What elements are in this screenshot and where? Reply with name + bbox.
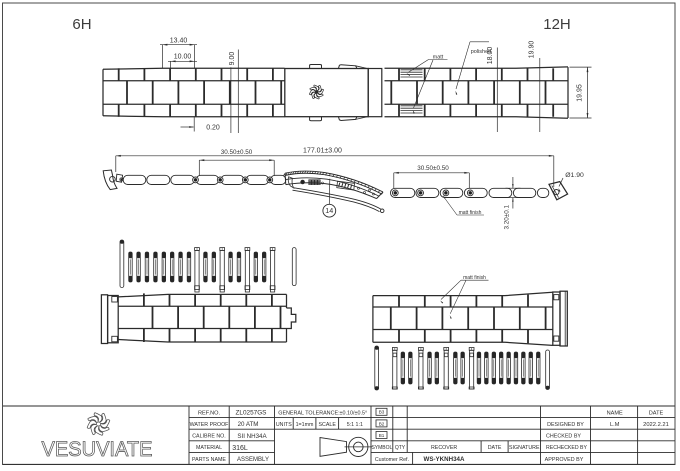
svg-text:DATE: DATE [488,445,502,451]
svg-text:APPROVED BY: APPROVED BY [545,457,584,463]
svg-text:DATE: DATE [649,410,664,416]
svg-text:ASSEMBLY: ASSEMBLY [237,457,269,463]
svg-text:SYMBOL: SYMBOL [371,445,392,451]
svg-text:9.00: 9.00 [229,52,236,66]
svg-text:19.90: 19.90 [529,41,536,59]
svg-text:SIGNATURE: SIGNATURE [509,445,540,451]
svg-text:RECOVER: RECOVER [431,445,457,451]
svg-text:CHECKED BY: CHECKED BY [546,434,581,440]
svg-text:14: 14 [325,206,333,215]
svg-text:5:1 1:1: 5:1 1:1 [347,422,363,428]
svg-text:DESIGNED BY: DESIGNED BY [547,422,584,428]
svg-text:10.00: 10.00 [174,54,192,61]
svg-text:316L: 316L [232,445,248,452]
svg-text:1=1mm: 1=1mm [296,422,314,428]
svg-text:RECHECKED BY: RECHECKED BY [546,445,587,451]
svg-text:SCALE: SCALE [319,422,337,428]
svg-text:SII NH34A: SII NH34A [237,433,267,440]
svg-text:0.20: 0.20 [206,125,220,132]
svg-text:30.50±0.50: 30.50±0.50 [417,165,449,172]
svg-text:PARTS NAME: PARTS NAME [192,457,226,463]
svg-text:L.M: L.M [610,422,620,428]
svg-text:UNITS: UNITS [276,422,292,428]
svg-text:Customer Ref.: Customer Ref. [375,457,409,463]
svg-text:MATERIAL: MATERIAL [196,445,222,451]
svg-text:NAME: NAME [607,410,623,416]
svg-text:B1: B1 [379,433,385,438]
svg-text:QTY: QTY [395,445,406,451]
svg-text:WATER PROOF: WATER PROOF [190,422,230,428]
svg-text:VESUVIATE: VESUVIATE [42,437,153,461]
svg-text:REF.NO.: REF.NO. [198,410,221,416]
svg-text:CALIBRE NO.: CALIBRE NO. [192,434,226,440]
svg-text:30.50±0.50: 30.50±0.50 [221,149,253,156]
svg-text:B3: B3 [379,410,385,415]
svg-text:ZL0257GS: ZL0257GS [236,410,267,417]
svg-text:18.00: 18.00 [487,47,494,65]
svg-text:20 ATM: 20 ATM [238,421,259,428]
svg-text:WS-YKNH34A: WS-YKNH34A [424,456,465,463]
svg-text:6H: 6H [72,16,91,33]
svg-text:GENERAL TOLERANCE:±0.10/±0.5°: GENERAL TOLERANCE:±0.10/±0.5° [278,410,367,416]
svg-text:12H: 12H [543,16,571,33]
svg-text:2022.2.21: 2022.2.21 [643,422,669,428]
svg-text:13.40: 13.40 [170,38,188,45]
svg-text:19.95: 19.95 [577,84,584,102]
svg-text:3.20±0.1: 3.20±0.1 [504,205,511,230]
svg-text:177.01±3.00: 177.01±3.00 [303,148,342,155]
svg-text:B2: B2 [379,421,385,426]
svg-text:Ø1.90: Ø1.90 [565,172,584,179]
